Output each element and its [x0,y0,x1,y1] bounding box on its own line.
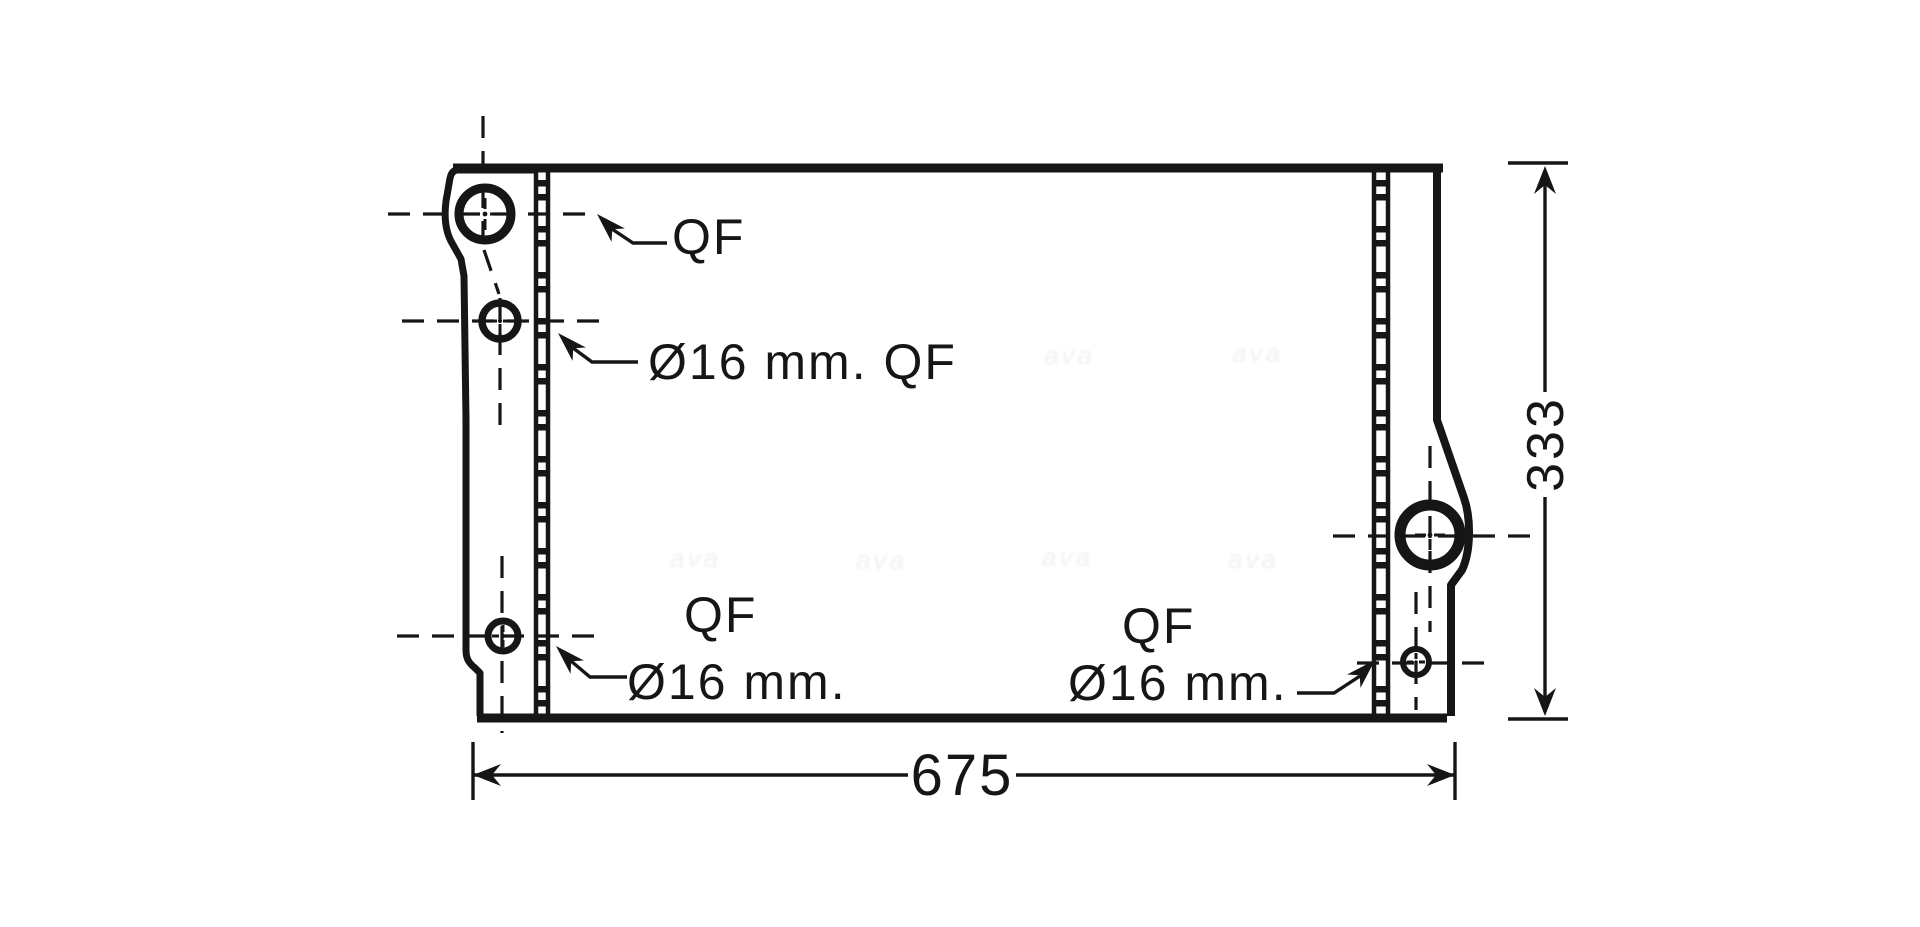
width-dimension: 675 [473,742,1455,808]
watermark-text: ava [670,543,721,573]
callout-top-label: QF [672,209,745,265]
centerline-slant [484,250,499,294]
right-strip-rungs [1376,172,1386,714]
callout-leaders [556,214,1375,693]
callout-lower-right-label-line1: QF [1122,598,1195,654]
leader-arrowhead-icon [558,333,586,361]
technical-drawing-page: ava ava ava ava ava ava [0,0,1920,927]
watermark-text: ava [1042,542,1093,572]
watermark-text: ava [856,545,907,575]
centerlines [388,116,1532,733]
leader-arrowhead-icon [597,214,625,242]
watermark-text: ava [1228,544,1279,574]
crosshair-dot [483,212,488,217]
mounting-holes [459,188,1460,675]
height-dimension: 333 [1508,163,1575,719]
callout-upper-label: Ø16 mm. QF [648,334,957,390]
right-tank-outline [1437,172,1469,716]
callout-labels: QF Ø16 mm. QF QF Ø16 mm. QF Ø16 mm. [627,209,1288,711]
callout-lower-left-label-line2: Ø16 mm. [627,654,847,710]
leader-line [1297,676,1360,693]
leader-line [571,661,627,677]
leader-line [612,229,667,243]
right-core-strip [1374,168,1388,718]
radiator-technical-drawing: ava ava ava ava ava ava [0,0,1920,927]
callout-lower-right-label-line2: Ø16 mm. [1068,655,1288,711]
watermark-text: ava [1044,340,1095,370]
width-dimension-value: 675 [911,743,1014,808]
callout-lower-left-label-line1: QF [684,587,757,643]
watermark-text: ava [1232,338,1283,368]
height-dimension-value: 333 [1517,396,1575,492]
leader-line [573,348,638,362]
radiator-body [445,168,1469,718]
